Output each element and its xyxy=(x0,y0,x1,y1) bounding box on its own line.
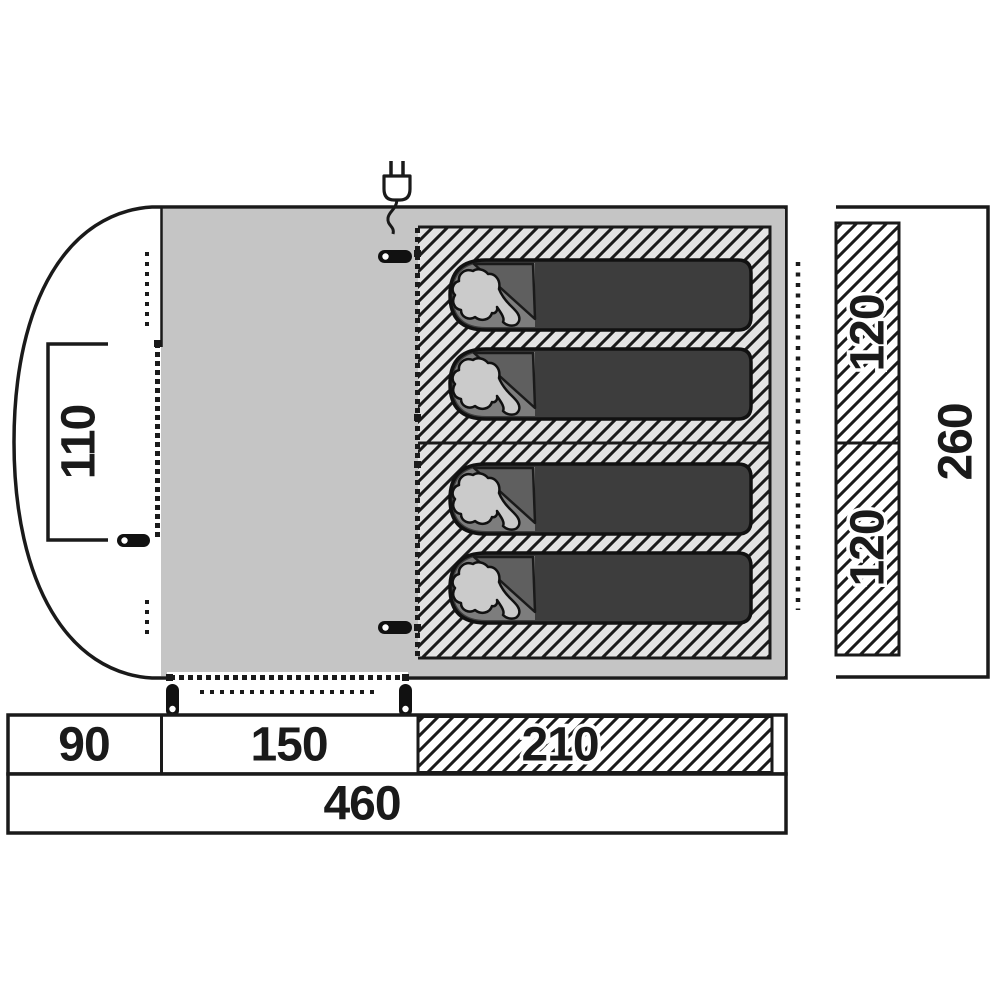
zipper-pull-front-left xyxy=(166,684,179,717)
zipper-stop xyxy=(414,250,421,257)
zipper-pull-bedroom-top xyxy=(378,250,412,263)
total-length-label: 460 xyxy=(323,778,400,831)
bedroom-length-label: 210 xyxy=(521,719,598,772)
bedroom-width-bar xyxy=(836,223,899,655)
sleeping-bag-3 xyxy=(450,464,751,534)
window-width-label: 110 xyxy=(53,405,106,479)
zipper-stop xyxy=(414,414,421,421)
sleeping-bag-2 xyxy=(450,349,751,419)
floorplan-svg: 110 120 120 260 xyxy=(0,0,1000,1000)
bedroom-width-top-label: 120 xyxy=(842,294,895,371)
living-length-label: 150 xyxy=(250,719,327,772)
sleeping-bag-1 xyxy=(450,260,751,330)
zipper-stop xyxy=(166,674,173,681)
zipper-stop xyxy=(414,461,421,468)
zipper-stop xyxy=(414,624,421,631)
zipper-stop xyxy=(402,674,409,681)
bedroom-width-bottom-label: 120 xyxy=(842,509,895,586)
tent-floorplan-diagram: 110 120 120 260 xyxy=(0,0,1000,1000)
sleeping-bag-4 xyxy=(450,553,751,623)
zipper-stop xyxy=(154,340,161,347)
zipper-pull-porch xyxy=(117,534,150,547)
zipper-pull-front-right xyxy=(399,684,412,717)
zipper-pull-bedroom-bottom xyxy=(378,621,412,634)
porch-length-label: 90 xyxy=(58,719,109,772)
tent-depth-label: 260 xyxy=(930,403,983,480)
